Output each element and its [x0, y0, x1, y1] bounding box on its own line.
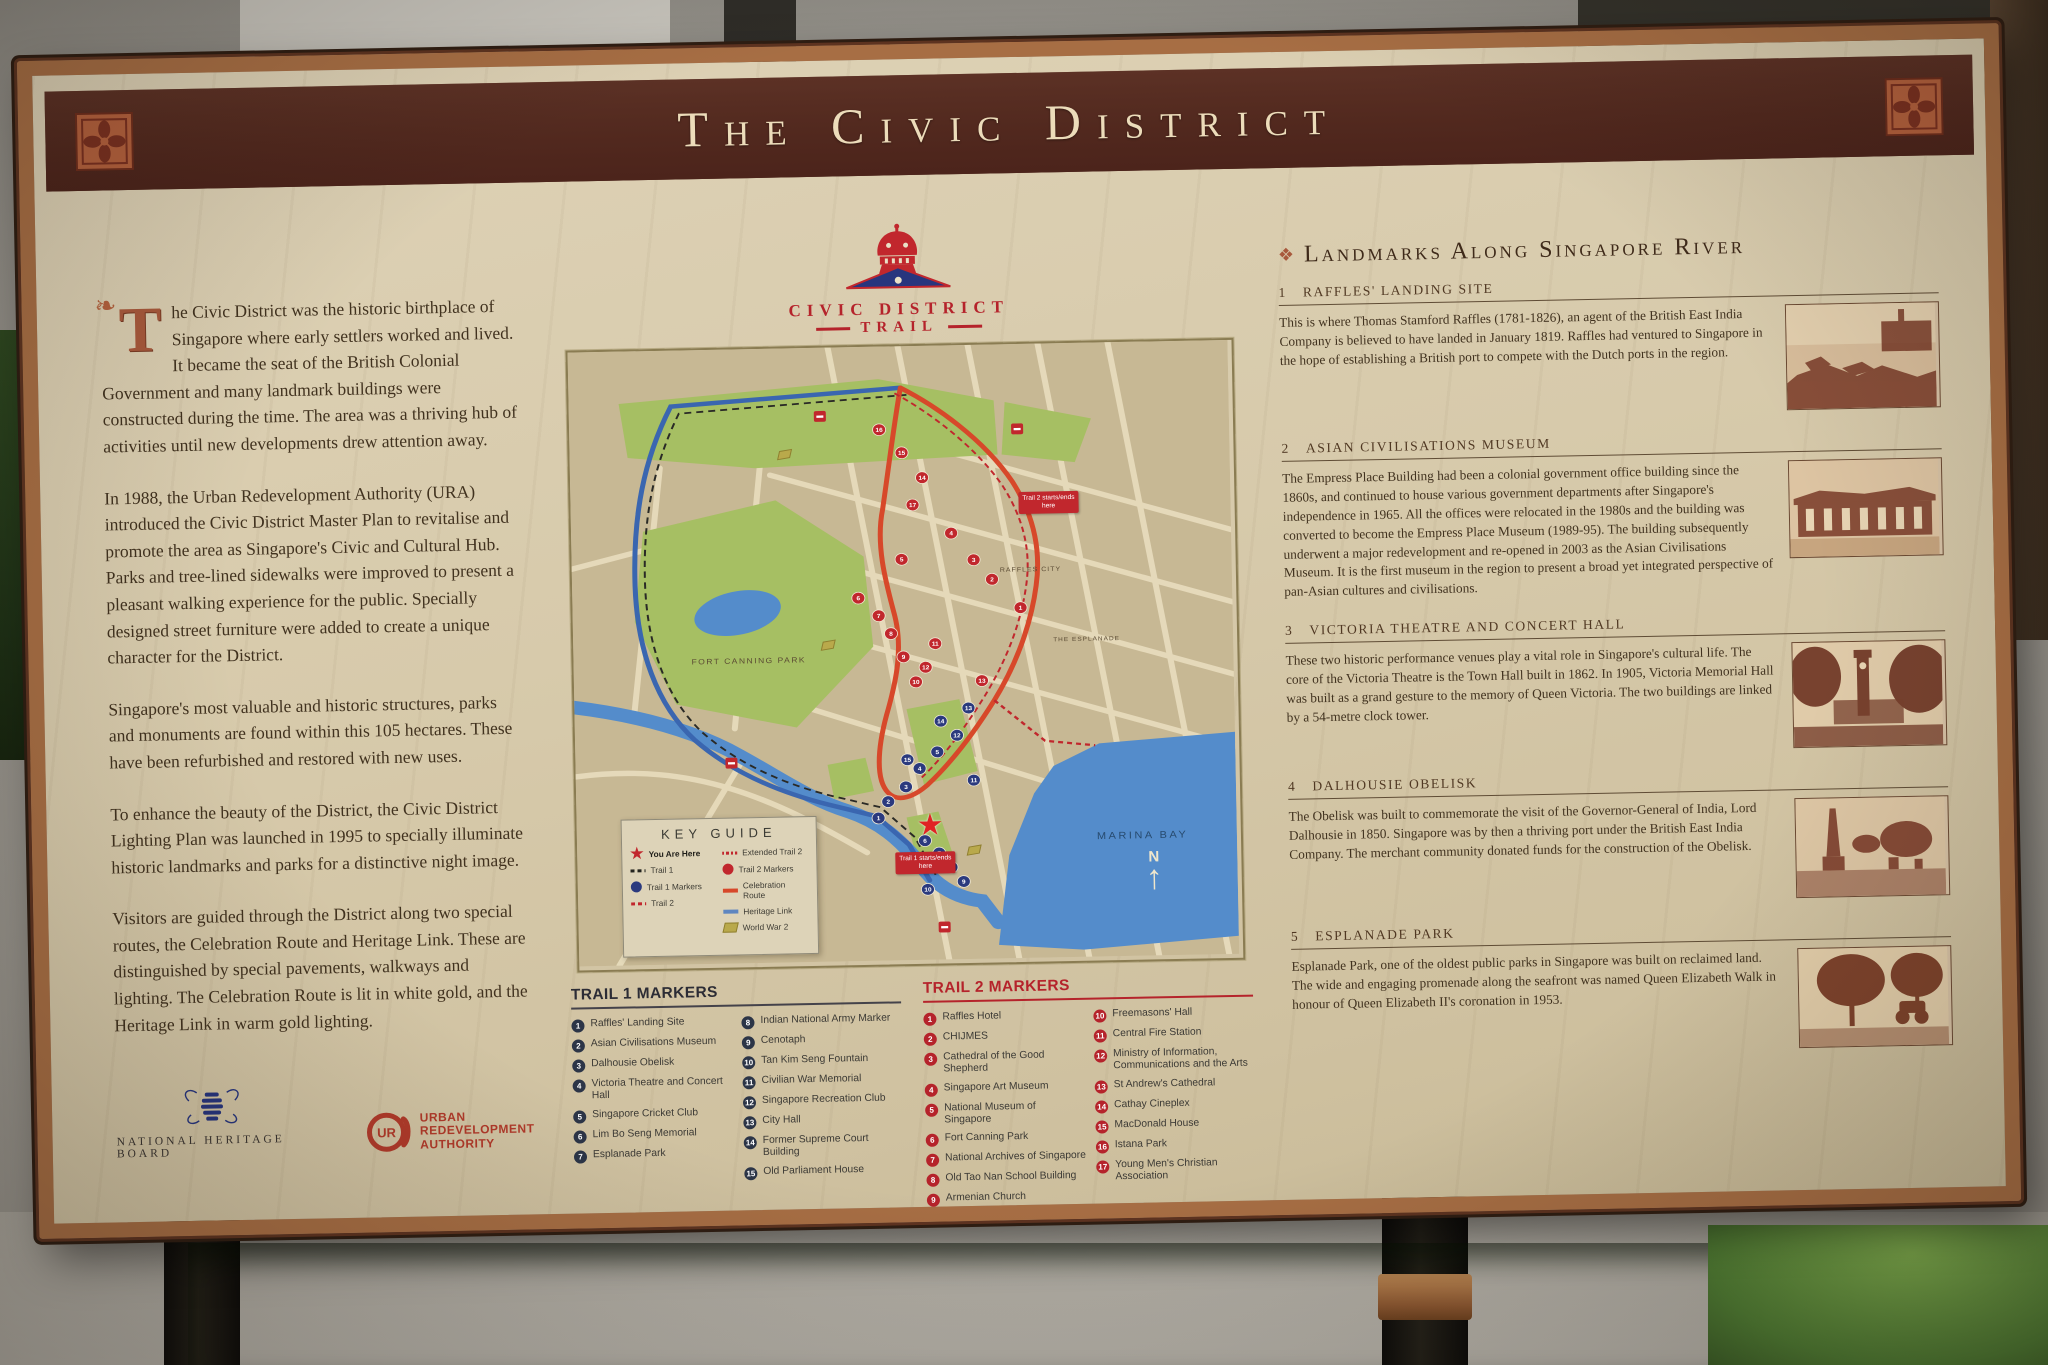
marker-number-badge: 3 — [572, 1059, 585, 1072]
trail2-marker-item: 5National Museum of Singapore — [925, 1100, 1085, 1128]
nhb-emblem-icon — [176, 1084, 247, 1129]
diamond-ornament-icon: ❖ — [1278, 245, 1295, 266]
civic-district-trail-logo: CIVIC DISTRICT TRAIL — [787, 221, 1010, 338]
section-number: 3 — [1285, 623, 1294, 639]
dropcap-letter: T — [118, 303, 162, 355]
marker-number-badge: 10 — [742, 1056, 755, 1069]
trail2-marker-item: 12Ministry of Information, Communication… — [1094, 1046, 1254, 1074]
dropcap-flourish-icon: ❧ — [94, 286, 117, 326]
svg-text:14: 14 — [918, 475, 926, 482]
photo-of-civic-district-signboard: The Civic District ❧The Civic District w… — [0, 0, 2048, 1365]
trail1-marker-item: 6Lim Bo Seng Memorial — [573, 1126, 733, 1143]
photo-dalhousie-obelisk — [1794, 795, 1950, 898]
marker-number-badge: 2 — [572, 1039, 585, 1052]
marker-number-badge: 2 — [924, 1033, 937, 1046]
marker-number-badge: 3 — [924, 1053, 937, 1066]
section-number: 5 — [1291, 929, 1300, 945]
marker-number-badge: 5 — [573, 1110, 586, 1123]
trail-2-marker-dot-icon — [722, 864, 733, 875]
celebration-route-line-icon — [723, 888, 738, 892]
ura-caption-line3: AUTHORITY — [420, 1137, 535, 1153]
national-heritage-board-logo: NATIONAL HERITAGE BOARD — [116, 1083, 309, 1161]
svg-text:13: 13 — [978, 678, 986, 685]
landmark-section-dalhousie-obelisk: 4DALHOUSIE OBELISK The Obelisk was built… — [1288, 766, 1950, 908]
intro-paragraph-1: ❧The Civic District was the historic bir… — [100, 293, 521, 461]
trail1-marker-item: 15Old Parliament House — [744, 1163, 904, 1180]
svg-text:15: 15 — [898, 450, 906, 457]
you-are-here-star-icon: ★ — [630, 849, 644, 859]
trail2-marker-item: 15MacDonald House — [1095, 1116, 1255, 1133]
key-guide-title: KEY GUIDE — [630, 824, 808, 842]
trail2-marker-item: 7National Archives of Singapore — [926, 1150, 1086, 1167]
you-are-here-star: ★ — [916, 807, 944, 843]
svg-text:13: 13 — [965, 705, 973, 712]
section-number: 1 — [1278, 285, 1287, 301]
marker-number-badge: 7 — [574, 1150, 587, 1163]
trail-logo-line2: TRAIL — [860, 319, 938, 337]
section-heading: DALHOUSIE OBELISK — [1312, 775, 1477, 794]
svg-text:14: 14 — [937, 718, 945, 725]
map-label-marina-bay: MARINA BAY — [1097, 830, 1189, 842]
svg-text:UR: UR — [377, 1125, 397, 1140]
marker-number-badge: 13 — [1095, 1080, 1108, 1093]
nhb-caption: NATIONAL HERITAGE BOARD — [117, 1133, 309, 1161]
marker-number-badge: 6 — [574, 1130, 587, 1143]
intro-paragraph-2: In 1988, the Urban Redevelopment Authori… — [104, 477, 525, 671]
key-label: Trail 2 — [651, 898, 674, 908]
trail2-marker-item: 6Fort Canning Park — [926, 1130, 1086, 1147]
trail1-marker-item: 12Singapore Recreation Club — [743, 1092, 903, 1109]
trail2-marker-item: 4Singapore Art Museum — [925, 1080, 1085, 1097]
intro-paragraph-4: To enhance the beauty of the District, t… — [110, 793, 529, 881]
svg-text:11: 11 — [932, 641, 940, 648]
logo-dash-right — [948, 325, 982, 329]
landmark-section-esplanade-park: 5ESPLANADE PARK Esplanade Park, one of t… — [1291, 916, 1953, 1058]
trail2-marker-item: 11Central Fire Station — [1094, 1026, 1254, 1043]
svg-text:17: 17 — [909, 502, 917, 509]
marker-number-badge: 8 — [926, 1174, 939, 1187]
key-guide: KEY GUIDE ★You Are Here Trail 1 Trail 1 … — [621, 816, 820, 958]
section-text: This is where Thomas Stamford Raffles (1… — [1279, 305, 1772, 371]
trail2-marker-item: 1Raffles Hotel — [923, 1009, 1083, 1026]
title-band: The Civic District — [44, 55, 1974, 192]
marker-number-badge: 4 — [573, 1079, 586, 1092]
landmark-section-raffles-landing: 1RAFFLES' LANDING SITE This is where Tho… — [1278, 272, 1940, 420]
section-number: 2 — [1281, 441, 1290, 457]
compass-north: N↑ — [1145, 849, 1163, 892]
map-label-esplanade: THE ESPLANADE — [1053, 635, 1120, 643]
trail-2-markers-list: TRAIL 2 MARKERS 1Raffles Hotel 2CHIJMES … — [923, 974, 1257, 1208]
ura-emblem-icon: UR — [366, 1109, 413, 1156]
marker-number-badge: 9 — [927, 1194, 940, 1207]
marker-number-badge: 14 — [744, 1136, 757, 1149]
photo-raffles-landing-site — [1785, 301, 1941, 410]
landmarks-title: Landmarks Along Singapore River — [1304, 233, 1746, 268]
trail-1-marker-dot-icon — [631, 881, 642, 892]
urban-redevelopment-authority-logo: UR URBAN REDEVELOPMENT AUTHORITY — [366, 1107, 535, 1156]
heritage-link-line-icon — [723, 909, 738, 913]
photo-asian-civilisations-museum — [1788, 457, 1944, 558]
svg-text:10: 10 — [924, 887, 932, 894]
intro-paragraph-3: Singapore's most valuable and historic s… — [108, 688, 527, 776]
trail1-start-note: Trail 1 starts/ends here — [895, 851, 955, 875]
trail1-marker-item: 3Dalhousie Obelisk — [572, 1056, 732, 1073]
trail1-marker-item: 8Indian National Army Marker — [741, 1012, 901, 1029]
trail1-marker-item: 11Civilian War Memorial — [742, 1072, 902, 1089]
trail-1-markers-list: TRAIL 1 MARKERS 1Raffles' Landing Site 2… — [571, 980, 905, 1214]
section-heading: ESPLANADE PARK — [1315, 926, 1455, 945]
organisation-logos: NATIONAL HERITAGE BOARD UR URBAN REDEVEL… — [116, 1079, 535, 1161]
photo-victoria-theatre — [1791, 639, 1947, 748]
trail2-marker-item: 17Young Men's Christian Association — [1096, 1156, 1256, 1184]
marker-number-badge: 8 — [741, 1016, 754, 1029]
svg-text:11: 11 — [970, 777, 978, 784]
section-text: The Obelisk was built to commemorate the… — [1288, 799, 1781, 865]
photo-esplanade-park — [1797, 945, 1953, 1048]
trail1-marker-item: 14Former Supreme Court Building — [744, 1132, 904, 1160]
trail1-marker-item: 13City Hall — [743, 1112, 903, 1129]
sign-title: The Civic District — [677, 88, 1342, 159]
trail-2-dash-icon — [631, 902, 646, 905]
marker-number-badge: 17 — [1096, 1160, 1109, 1173]
section-heading: ASIAN CIVILISATIONS MUSEUM — [1306, 436, 1551, 457]
marker-number-badge: 14 — [1095, 1100, 1108, 1113]
trail-1-dash-icon — [630, 869, 645, 872]
key-label: Trail 1 Markers — [647, 881, 702, 892]
landmarks-column: ❖ Landmarks Along Singapore River 1RAFFL… — [1277, 203, 1960, 1192]
trail1-marker-item: 10Tan Kim Seng Fountain — [742, 1052, 902, 1069]
key-label: Celebration Route — [743, 879, 809, 900]
key-label: World War 2 — [743, 921, 789, 932]
section-heading: RAFFLES' LANDING SITE — [1303, 281, 1494, 301]
map-column: CIVIC DISTRICT TRAIL — [551, 217, 1262, 1206]
logo-dash-left — [816, 327, 850, 331]
svg-text:12: 12 — [922, 665, 930, 672]
marker-number-badge: 15 — [744, 1167, 757, 1180]
marker-number-badge: 11 — [742, 1076, 755, 1089]
civic-district-map: 123456789101112131415 123456789101112131… — [566, 338, 1246, 973]
landmark-section-victoria-theatre: 3VICTORIA THEATRE AND CONCERT HALL These… — [1285, 610, 1947, 758]
trail2-marker-item: 10Freemasons' Hall — [1093, 1006, 1253, 1023]
trail1-marker-item: 4Victoria Theatre and Concert Hall — [573, 1076, 733, 1104]
marker-number-badge: 13 — [743, 1116, 756, 1129]
marker-number-badge: 1 — [923, 1013, 936, 1026]
marker-number-badge: 4 — [925, 1083, 938, 1096]
marker-number-badge: 16 — [1096, 1140, 1109, 1153]
key-label: You Are Here — [649, 848, 701, 859]
corner-rosette-icon — [1885, 77, 1944, 136]
trail2-marker-item: 14Cathay Cineplex — [1095, 1096, 1255, 1113]
key-label: Trail 2 Markers — [738, 863, 793, 874]
section-text: The Empress Place Building had been a co… — [1282, 460, 1776, 602]
trail1-marker-item: 7Esplanade Park — [574, 1146, 734, 1163]
trail2-marker-item: 13St Andrew's Cathedral — [1095, 1076, 1255, 1093]
intro-paragraph-5: Visitors are guided through the District… — [112, 898, 532, 1039]
extended-trail-2-dash-icon — [722, 851, 737, 854]
trail2-marker-item: 3Cathedral of the Good Shepherd — [924, 1049, 1084, 1077]
trail1-marker-item: 9Cenotaph — [742, 1032, 902, 1049]
key-label: Extended Trail 2 — [742, 846, 802, 857]
marker-number-badge: 5 — [925, 1103, 938, 1116]
trail-2-markers-title: TRAIL 2 MARKERS — [923, 974, 1253, 1003]
section-text: These two historic performance venues pl… — [1285, 643, 1778, 728]
trail-1-markers-title: TRAIL 1 MARKERS — [571, 980, 901, 1009]
trail2-marker-item: 2CHIJMES — [924, 1029, 1084, 1046]
landmark-section-asian-civilisations-museum: 2ASIAN CIVILISATIONS MUSEUM The Empress … — [1281, 428, 1944, 602]
trail1-marker-item: 1Raffles' Landing Site — [571, 1016, 731, 1033]
corner-rosette-icon — [75, 112, 134, 171]
trail-logo-dome-icon — [837, 222, 958, 298]
key-label: Heritage Link — [743, 905, 792, 916]
marker-number-badge: 1 — [571, 1019, 584, 1032]
marker-number-badge: 9 — [742, 1036, 755, 1049]
trail2-marker-item: 8Old Tao Nan School Building — [926, 1170, 1086, 1187]
trail2-marker-item: 9Armenian Church — [927, 1190, 1087, 1207]
marker-number-badge: 15 — [1095, 1120, 1108, 1133]
section-text: Esplanade Park, one of the oldest public… — [1291, 949, 1784, 1015]
intro-column: ❧The Civic District was the historic bir… — [99, 231, 536, 1215]
bright-bush-right — [1708, 1225, 2048, 1365]
world-war-2-flag-icon — [722, 922, 738, 932]
trail1-marker-item: 2Asian Civilisations Museum — [572, 1036, 732, 1053]
svg-text:10: 10 — [912, 679, 920, 686]
marker-number-badge: 7 — [926, 1154, 939, 1167]
svg-text:12: 12 — [953, 733, 961, 740]
civic-district-signboard: The Civic District ❧The Civic District w… — [17, 23, 2021, 1239]
trail1-marker-item: 5Singapore Cricket Club — [573, 1106, 733, 1123]
key-label: Trail 1 — [650, 865, 673, 875]
svg-text:15: 15 — [904, 757, 912, 764]
marker-number-badge: 12 — [1094, 1049, 1107, 1062]
marker-number-badge: 12 — [743, 1096, 756, 1109]
map-label-raffles-city: RAFFLES CITY — [1000, 566, 1061, 574]
marker-number-badge: 10 — [1093, 1009, 1106, 1022]
trail-marker-lists: TRAIL 1 MARKERS 1Raffles' Landing Site 2… — [571, 974, 1257, 1214]
marker-number-badge: 6 — [926, 1134, 939, 1147]
marker-number-badge: 11 — [1094, 1029, 1107, 1042]
section-number: 4 — [1288, 779, 1297, 795]
trail2-start-note: Trail 2 starts/ends here — [1018, 491, 1078, 515]
section-heading: VICTORIA THEATRE AND CONCERT HALL — [1309, 616, 1625, 638]
svg-text:16: 16 — [875, 427, 883, 434]
trail2-marker-item: 16Istana Park — [1096, 1136, 1256, 1153]
